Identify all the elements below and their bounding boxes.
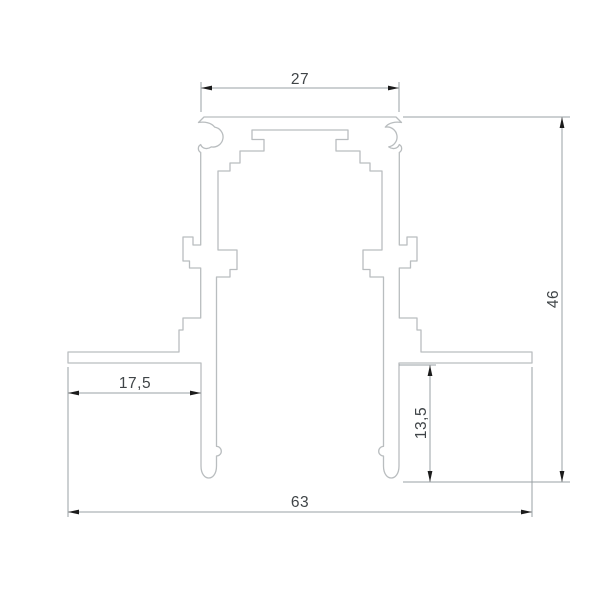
arrowhead-left-icon [68,510,79,515]
dimension-label-overall-width: 63 [291,494,309,511]
arrowhead-up-icon [560,117,565,128]
dimension-label-overall-height: 46 [545,290,562,308]
technical-drawing: 27 46 17,5 13,5 63 [0,0,600,600]
dimension-label-left-flange-width: 17,5 [119,375,151,392]
profile-cross-section-path [68,117,532,478]
dimension-lines [68,82,570,517]
dimension-label-recess-depth: 13,5 [413,407,430,439]
arrowhead-down-icon [560,471,565,482]
arrowhead-right-icon [521,510,532,515]
dimension-arrowheads [68,86,564,515]
dimension-label-top-width: 27 [291,71,309,88]
arrowhead-up-icon [428,365,433,376]
dimension-labels: 27 46 17,5 13,5 63 [119,71,562,511]
drawing-canvas: 27 46 17,5 13,5 63 [0,0,600,600]
arrowhead-left-icon [201,86,212,91]
arrowhead-left-icon [68,391,79,396]
arrowhead-right-icon [388,86,399,91]
arrowhead-down-icon [428,471,433,482]
arrowhead-right-icon [190,391,201,396]
profile-outline [68,117,532,478]
